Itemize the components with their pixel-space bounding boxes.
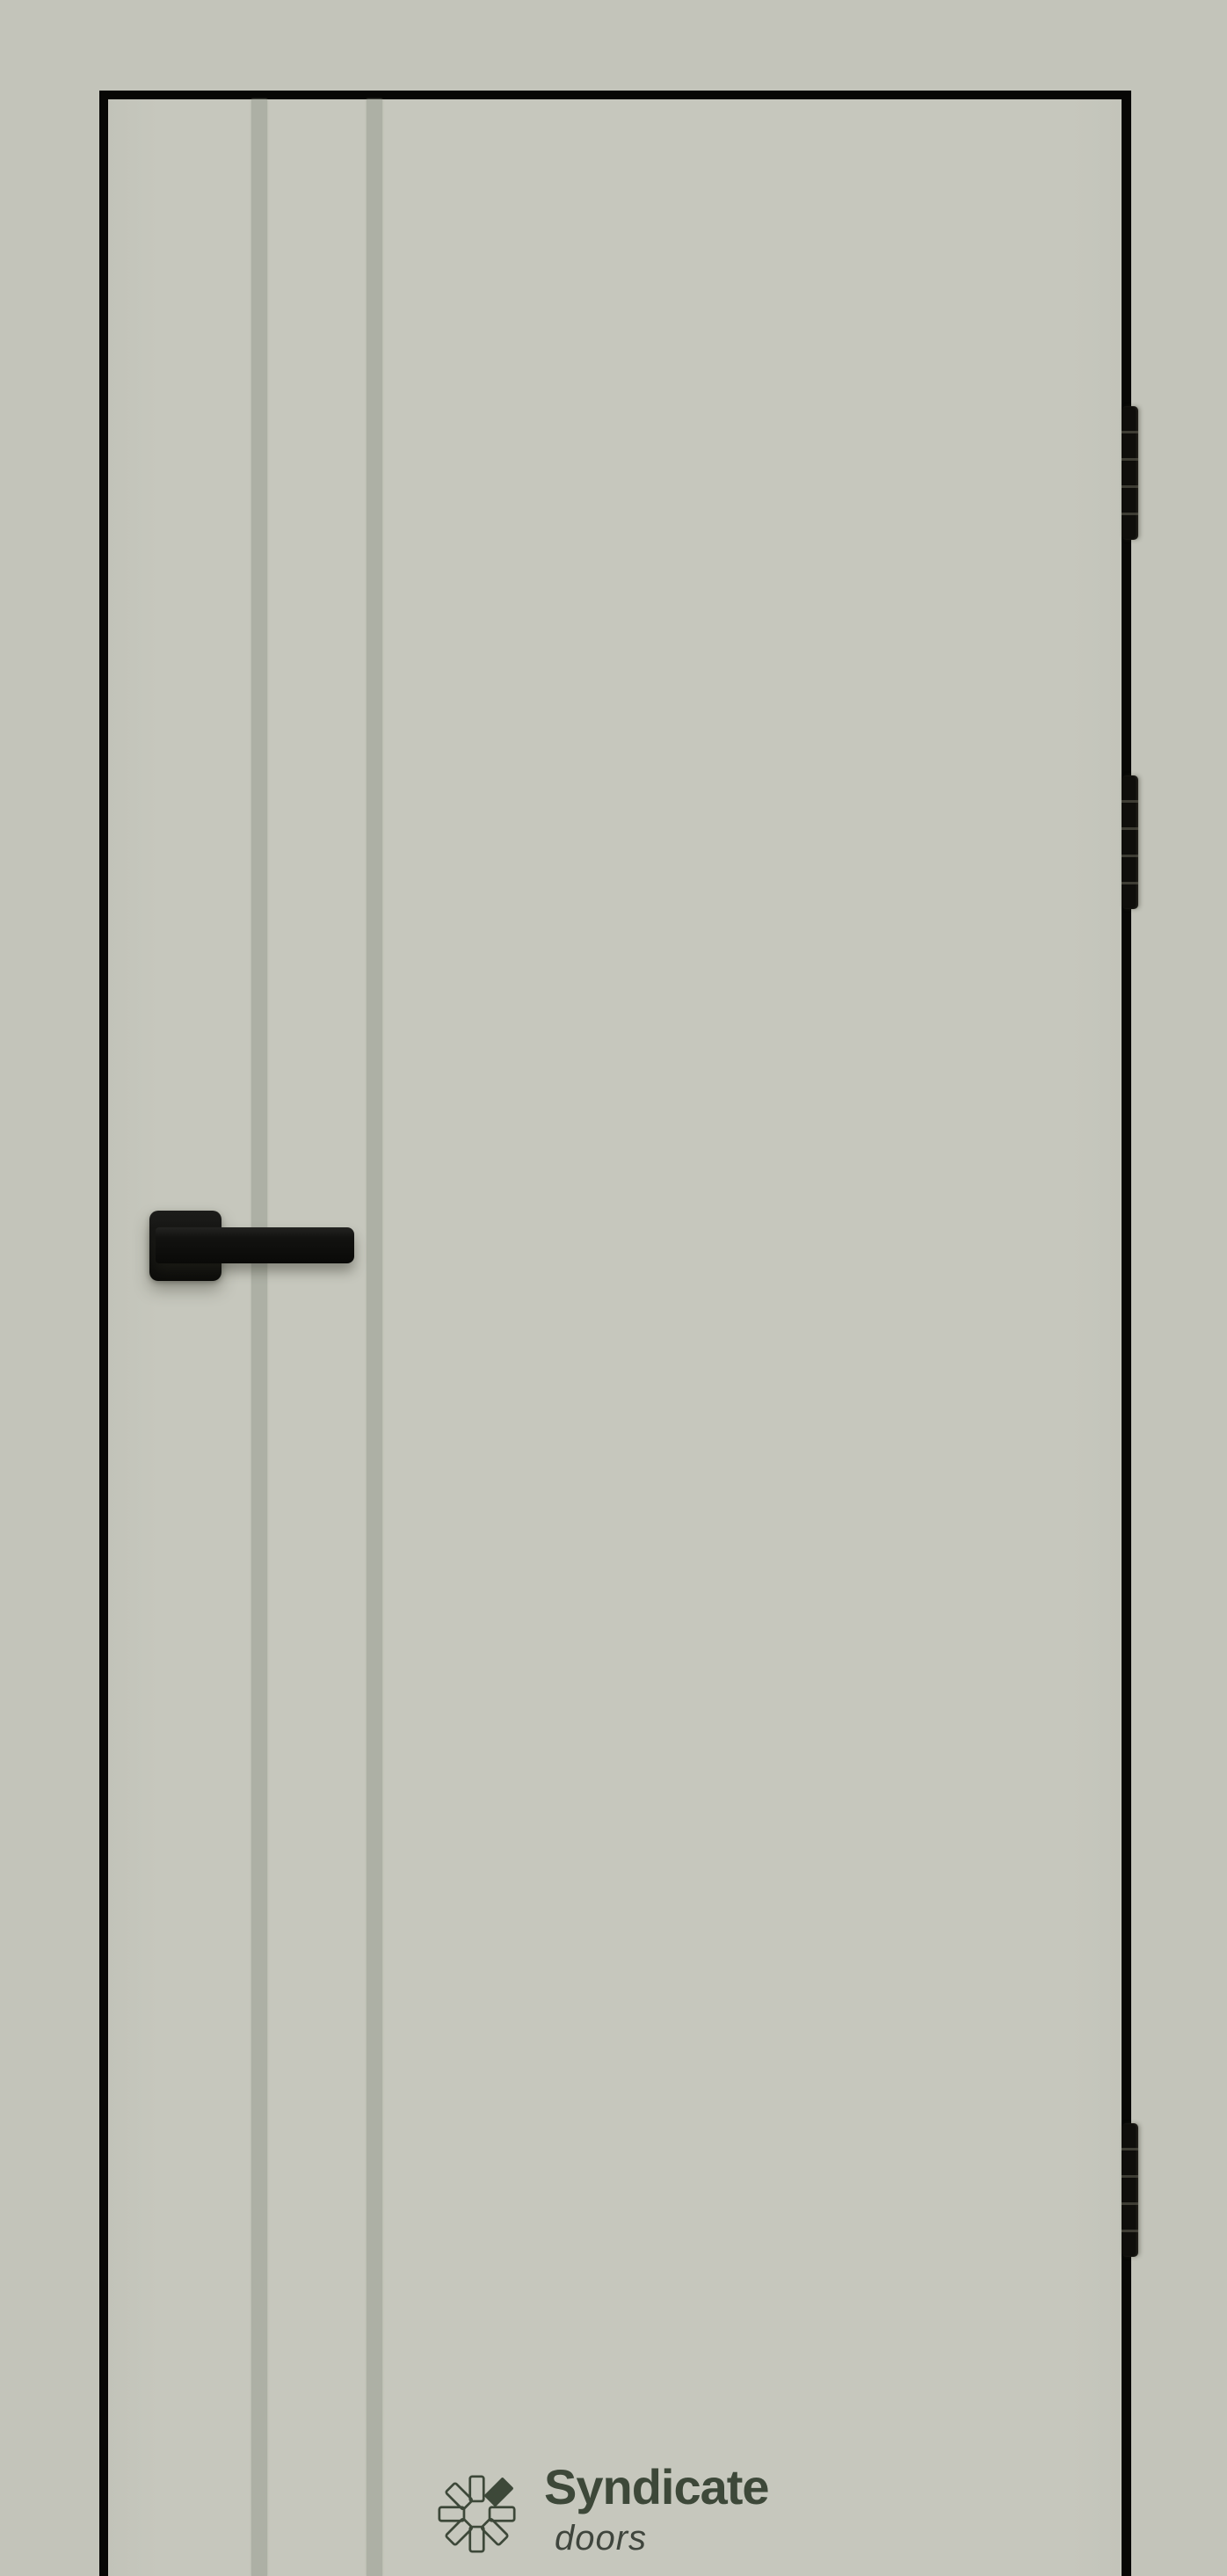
brand-name: Syndicate xyxy=(544,2463,769,2512)
pinwheel-petals-icon xyxy=(434,2471,519,2557)
door-hinge-bottom xyxy=(1122,2123,1138,2257)
product-image-background: Syndicate doors xyxy=(0,0,1227,2576)
door-hinge-middle xyxy=(1122,775,1138,909)
brand-tagline: doors xyxy=(555,2521,647,2556)
door-molding-stripe-left xyxy=(251,99,267,2576)
door-handle-lever xyxy=(156,1227,354,1263)
door-molding-stripe-right xyxy=(367,99,382,2576)
door-hinge-top xyxy=(1122,406,1138,540)
brand-logo: Syndicate doors xyxy=(434,2471,803,2568)
